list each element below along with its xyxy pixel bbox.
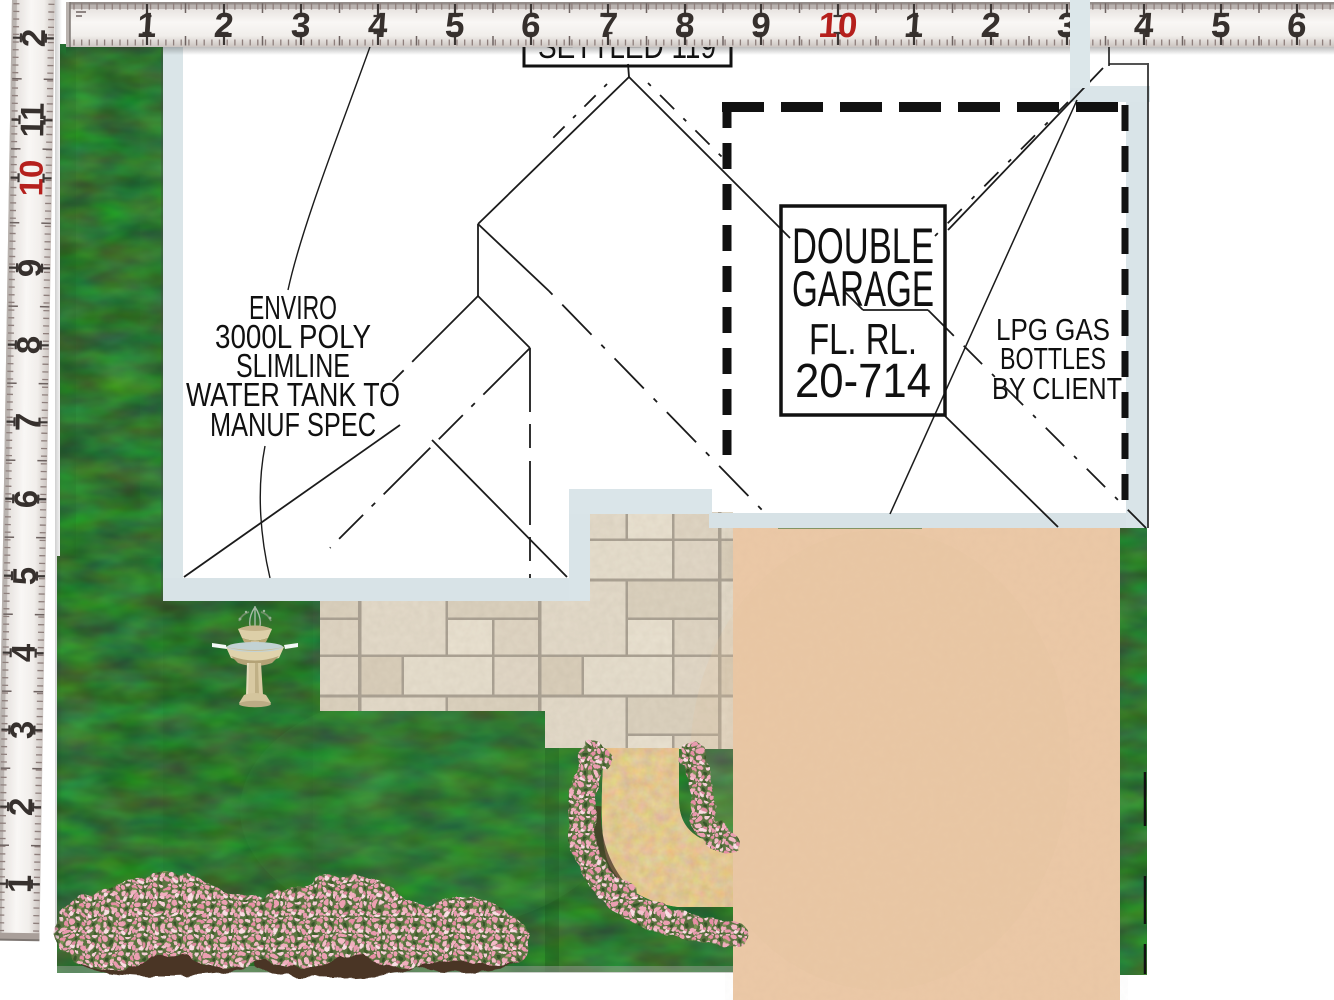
svg-text:6: 6 — [520, 6, 542, 45]
svg-text:10: 10 — [817, 6, 859, 45]
svg-text:20-714: 20-714 — [795, 355, 931, 408]
svg-text:2: 2 — [980, 6, 1002, 45]
svg-text:5: 5 — [6, 566, 43, 585]
svg-text:2: 2 — [15, 29, 52, 48]
svg-text:5: 5 — [444, 6, 466, 45]
svg-text:6: 6 — [1286, 6, 1308, 45]
svg-text:3: 3 — [3, 720, 40, 739]
svg-text:9: 9 — [750, 6, 772, 45]
svg-text:6: 6 — [7, 489, 44, 508]
svg-text:BY CLIENT: BY CLIENT — [992, 371, 1122, 406]
svg-text:11: 11 — [13, 102, 51, 137]
svg-text:2: 2 — [2, 797, 39, 816]
svg-text:4: 4 — [1133, 6, 1156, 45]
svg-text:8: 8 — [674, 6, 696, 45]
svg-text:MANUF SPEC: MANUF SPEC — [210, 406, 376, 443]
svg-text:2: 2 — [213, 6, 235, 45]
svg-text:GARAGE: GARAGE — [792, 261, 934, 317]
svg-text:7: 7 — [597, 6, 619, 45]
svg-text:8: 8 — [10, 335, 47, 354]
svg-text:1: 1 — [903, 6, 925, 45]
svg-text:7: 7 — [8, 412, 45, 431]
svg-text:4: 4 — [367, 6, 390, 45]
svg-text:1: 1 — [136, 6, 158, 45]
svg-text:1: 1 — [1, 874, 38, 893]
svg-text:5: 5 — [1210, 6, 1232, 45]
svg-text:9: 9 — [11, 258, 48, 277]
svg-text:3: 3 — [290, 6, 312, 45]
svg-text:10: 10 — [12, 159, 50, 196]
svg-text:4: 4 — [5, 643, 42, 663]
